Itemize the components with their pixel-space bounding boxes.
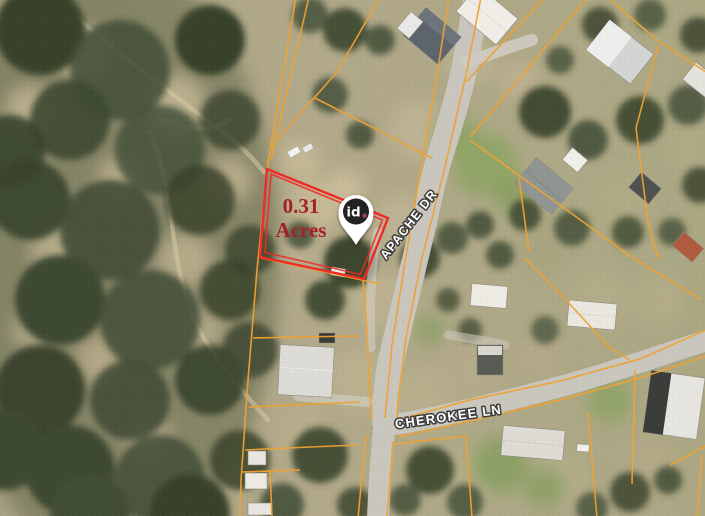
acreage-label: 0.31 Acres bbox=[276, 194, 327, 242]
pin-brand-text: id bbox=[346, 205, 360, 221]
pin-brand-dot bbox=[363, 214, 367, 218]
acreage-value: 0.31 bbox=[283, 194, 320, 218]
imagery-texture bbox=[0, 0, 705, 516]
aerial-map[interactable]: 0.31 Acres APACHE DR CHEROKEE LN id bbox=[0, 0, 705, 516]
acreage-unit: Acres bbox=[276, 218, 327, 242]
